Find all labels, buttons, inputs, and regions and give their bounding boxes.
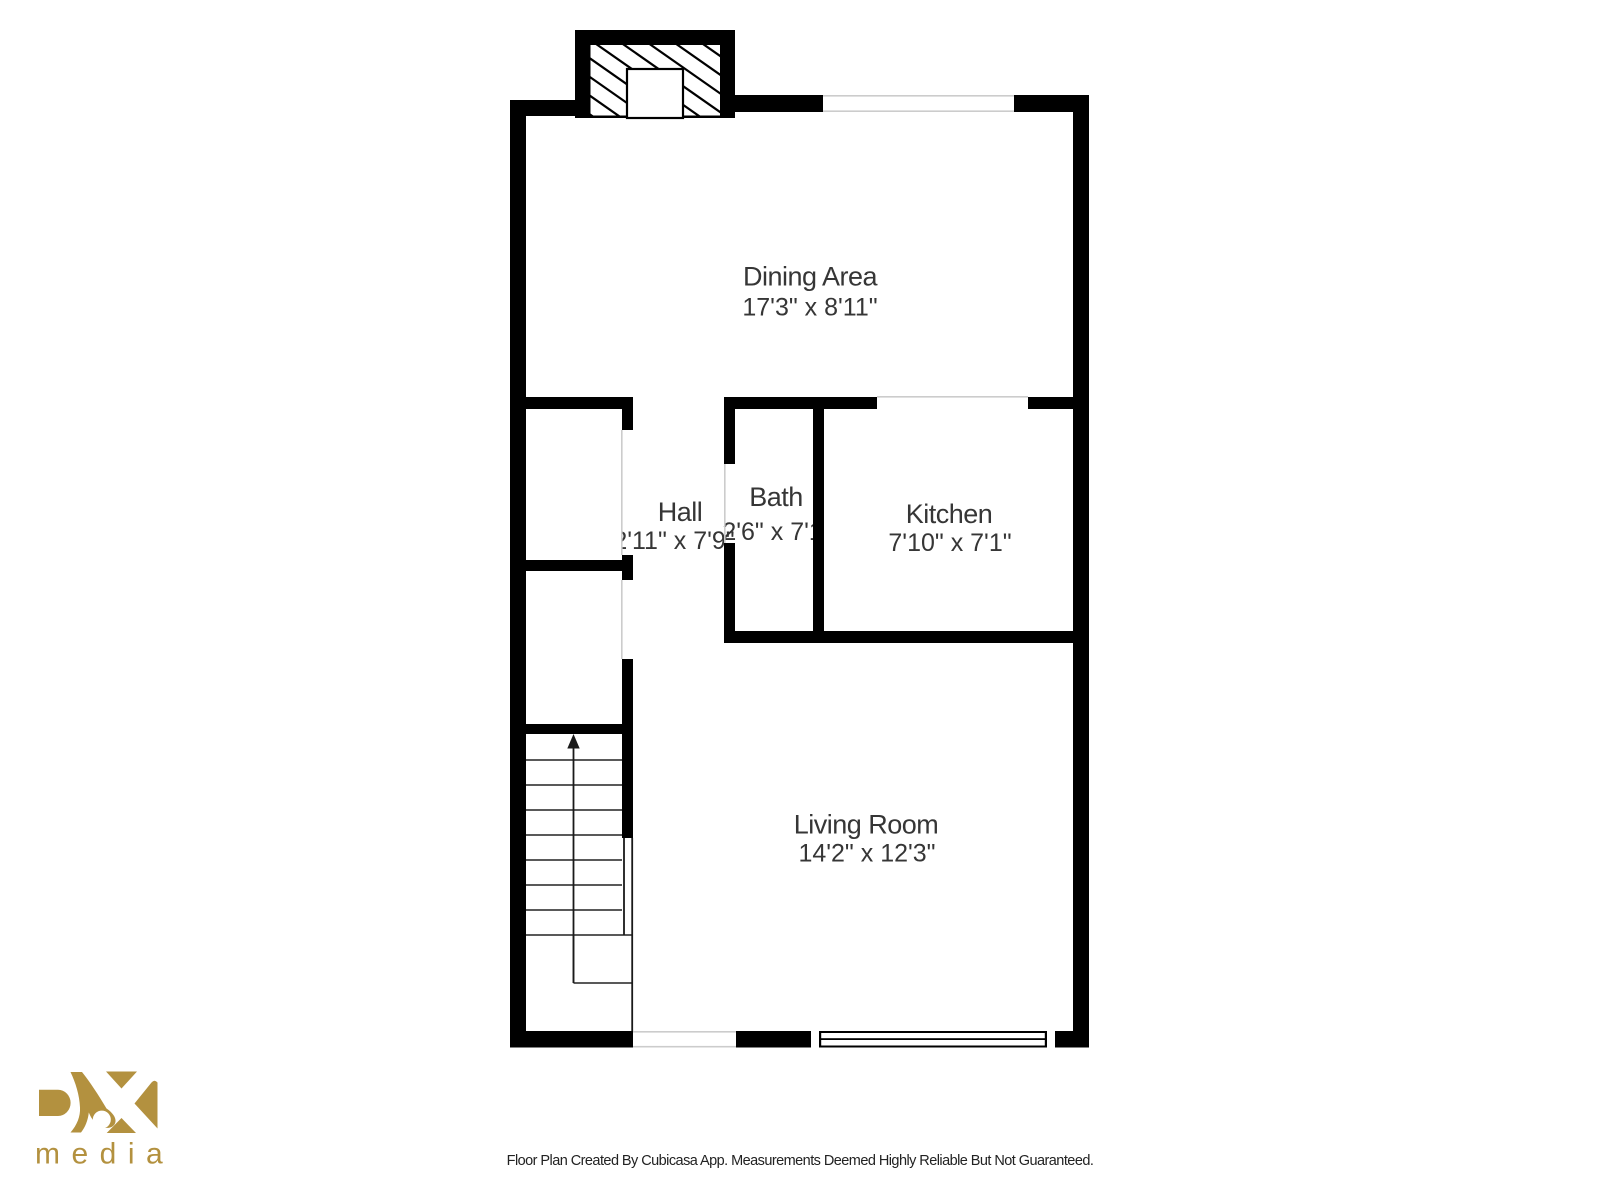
svg-text:7'10" x 7'1": 7'10" x 7'1" xyxy=(888,529,1011,557)
svg-text:media: media xyxy=(35,1138,174,1171)
svg-text:17'3" x 8'11": 17'3" x 8'11" xyxy=(742,294,877,322)
svg-text:Dining Area: Dining Area xyxy=(743,262,879,292)
svg-text:Hall: Hall xyxy=(658,497,703,527)
svg-text:Bath: Bath xyxy=(749,482,803,512)
svg-text:2'11" x 7'9": 2'11" x 7'9" xyxy=(613,527,734,555)
svg-text:14'2" x 12'3": 14'2" x 12'3" xyxy=(798,840,935,868)
svg-text:Kitchen: Kitchen xyxy=(906,499,993,529)
svg-text:Floor Plan Created By Cubicasa: Floor Plan Created By Cubicasa App. Meas… xyxy=(507,1153,1094,1169)
svg-text:Living Room: Living Room xyxy=(794,810,939,840)
